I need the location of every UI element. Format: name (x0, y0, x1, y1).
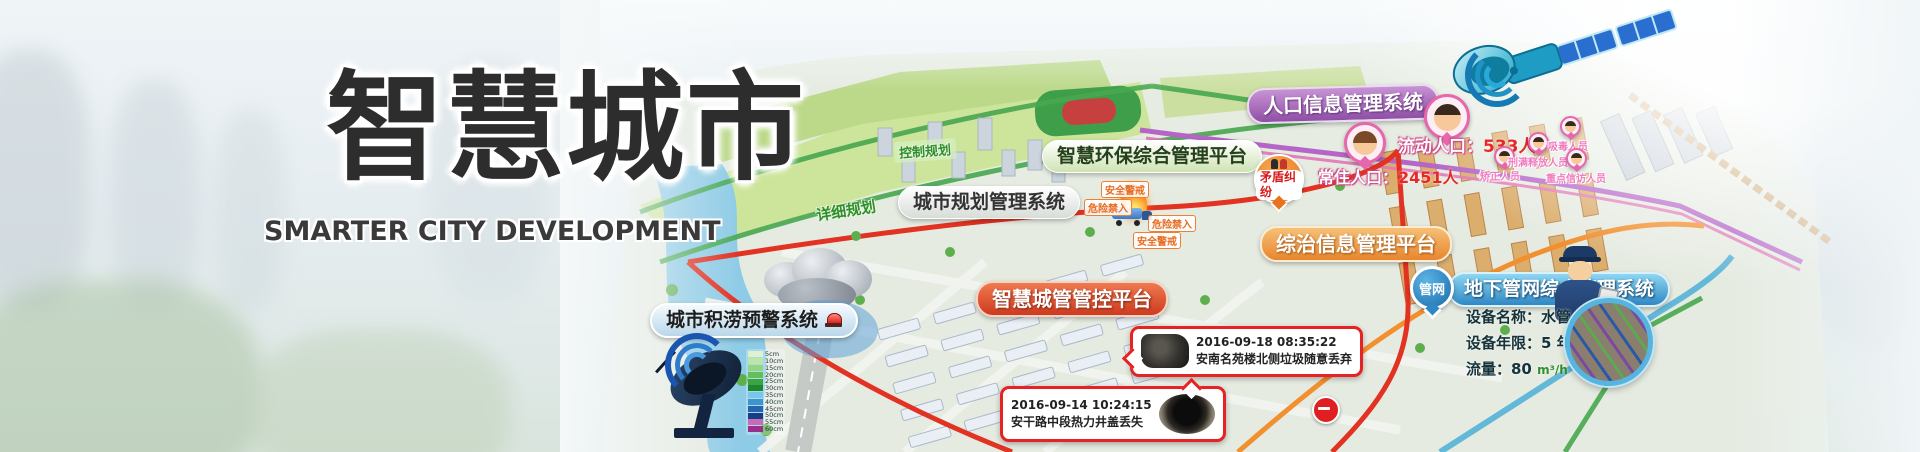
smart-city-banner: 智慧城市 SMARTER CITY DEVELOPMENT 城市积涝预警系统 5… (0, 0, 1920, 452)
person-category-label: 刑满释放人员 (1508, 154, 1568, 169)
incident-time: 2016-09-18 08:35:22 (1196, 334, 1352, 351)
person-category-label: 矫正人员 (1480, 168, 1520, 183)
map-pin-person[interactable] (1560, 116, 1581, 139)
male-avatar (1434, 104, 1461, 131)
incident-callout-manhole[interactable]: 2016-09-14 10:24:15 安干路中段热力井盖丢失 (1000, 386, 1226, 442)
pipe-magnifier-view (1565, 298, 1653, 386)
flood-depth-legend: 5cm 10cm 15cm 20cm 25cm 30cm 35cm 40cm 4… (746, 349, 785, 435)
incident-time: 2016-09-14 10:24:15 (1011, 397, 1152, 414)
map-pin-resident-population[interactable] (1344, 122, 1386, 168)
incident-desc: 安南名苑楼北侧垃圾随意丢弃 (1196, 351, 1352, 368)
garbage-photo (1141, 334, 1189, 368)
signal-waves-icon (662, 330, 732, 400)
no-entry-sign-icon (1312, 396, 1340, 424)
banner-governance-platform[interactable]: 综治信息管理平台 (1260, 226, 1452, 262)
incident-callout-garbage[interactable]: 2016-09-18 08:35:22 安南名苑楼北侧垃圾随意丢弃 (1130, 326, 1363, 377)
map-pin-person[interactable] (1566, 148, 1587, 171)
arguing-people-icon (1271, 159, 1287, 169)
satellite-signal-icon (1462, 40, 1532, 110)
page-subtitle: SMARTER CITY DEVELOPMENT (264, 216, 721, 247)
person-category-label: 重点信访人员 (1546, 170, 1606, 185)
hazard-sign: 危险禁入 (1148, 215, 1196, 232)
page-title: 智慧城市 (326, 64, 806, 194)
zone-label-control-plan: 控制规划 (893, 138, 956, 163)
banner-population-info-system[interactable]: 人口信息管理系统 (1247, 83, 1440, 124)
hazard-sign: 安全警戒 (1133, 232, 1181, 249)
hazard-sign: 危险禁入 (1084, 199, 1132, 216)
pipe-device-age: 设备年限：5 年 (1466, 330, 1572, 356)
map-pin-dispute[interactable]: 矛盾纠纷 (1254, 154, 1304, 210)
banner-flood-label: 城市积涝预警系统 (666, 309, 818, 332)
manhole-photo (1159, 394, 1215, 434)
pipe-device-name: 设备名称：水管 (1466, 304, 1572, 330)
map-pin-person[interactable] (1528, 132, 1549, 155)
siren-icon (825, 313, 842, 327)
pipe-device-info: 设备名称：水管 设备年限：5 年 流量：80 m³/h (1466, 304, 1572, 383)
map-pin-pipe-network[interactable]: 管网 (1410, 266, 1454, 317)
incident-desc: 安干路中段热力井盖丢失 (1011, 414, 1152, 431)
female-avatar (1353, 131, 1377, 155)
pipe-pin-label: 管网 (1419, 279, 1445, 298)
banner-city-management-platform[interactable]: 智慧城管管控平台 (976, 281, 1168, 317)
hazard-sign: 安全警戒 (1101, 181, 1149, 198)
banner-environment-platform[interactable]: 智慧环保综合管理平台 (1042, 140, 1262, 173)
pipe-flow: 流量：80 m³/h (1466, 356, 1572, 383)
banner-urban-planning-system[interactable]: 城市规划管理系统 (898, 186, 1080, 219)
resident-population-label: 常住人口：2451人 (1318, 164, 1459, 188)
